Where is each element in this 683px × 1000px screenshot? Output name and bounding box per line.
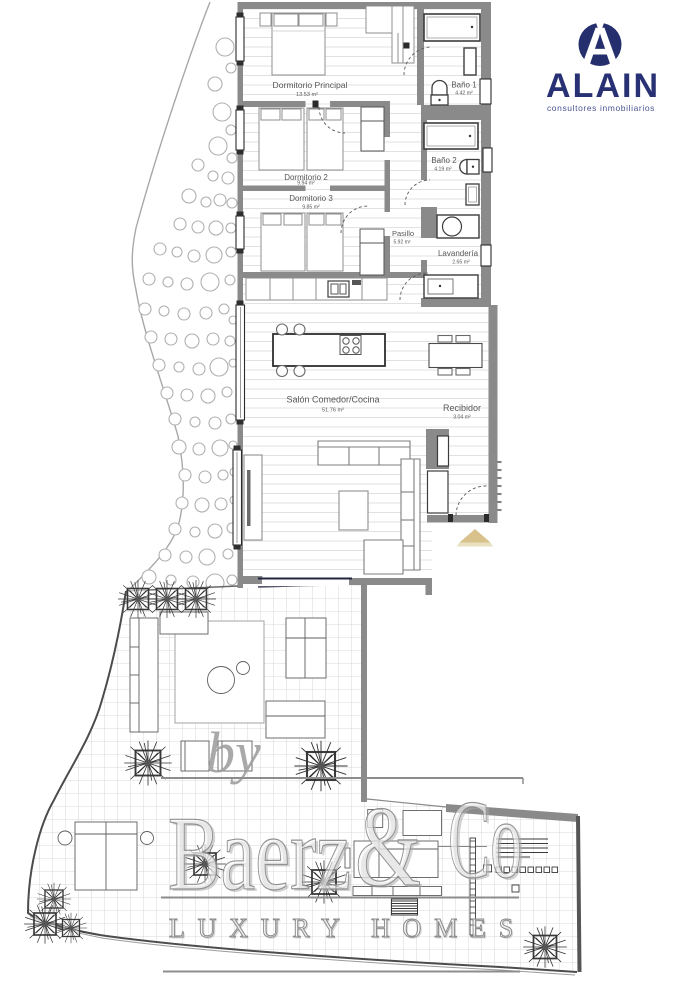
svg-text:9.94 m²: 9.94 m² (297, 181, 315, 187)
svg-text:51.76 m²: 51.76 m² (322, 408, 344, 414)
svg-text:Recibidor: Recibidor (443, 403, 481, 413)
svg-text:Salón Comedor/Cocina: Salón Comedor/Cocina (286, 395, 379, 405)
svg-text:Pasillo: Pasillo (392, 229, 414, 238)
svg-text:3.04 m²: 3.04 m² (453, 415, 471, 421)
svg-text:LUXURY HOMES: LUXURY HOMES (169, 913, 526, 943)
svg-text:consultores inmobiliarios: consultores inmobiliarios (547, 103, 655, 113)
svg-text:13.53 m²: 13.53 m² (296, 92, 318, 98)
svg-text:by: by (206, 720, 261, 785)
svg-text:&: & (355, 783, 421, 910)
svg-text:9.85 m²: 9.85 m² (302, 205, 320, 211)
svg-text:4.42 m²: 4.42 m² (455, 91, 473, 97)
svg-text:5.92 m²: 5.92 m² (394, 240, 411, 246)
svg-text:ALAIN: ALAIN (546, 67, 658, 105)
svg-text:Baño 1: Baño 1 (451, 81, 477, 90)
svg-text:2.65 m²: 2.65 m² (452, 260, 470, 266)
svg-text:Dormitorio 3: Dormitorio 3 (289, 194, 333, 203)
svg-text:Baerz: Baerz (168, 795, 351, 912)
svg-text:4.19 m²: 4.19 m² (434, 167, 452, 173)
svg-text:Baño 2: Baño 2 (431, 156, 457, 165)
svg-text:Co: Co (448, 778, 522, 902)
svg-text:Dormitorio Principal: Dormitorio Principal (273, 80, 348, 90)
svg-text:Lavandería: Lavandería (438, 249, 479, 258)
